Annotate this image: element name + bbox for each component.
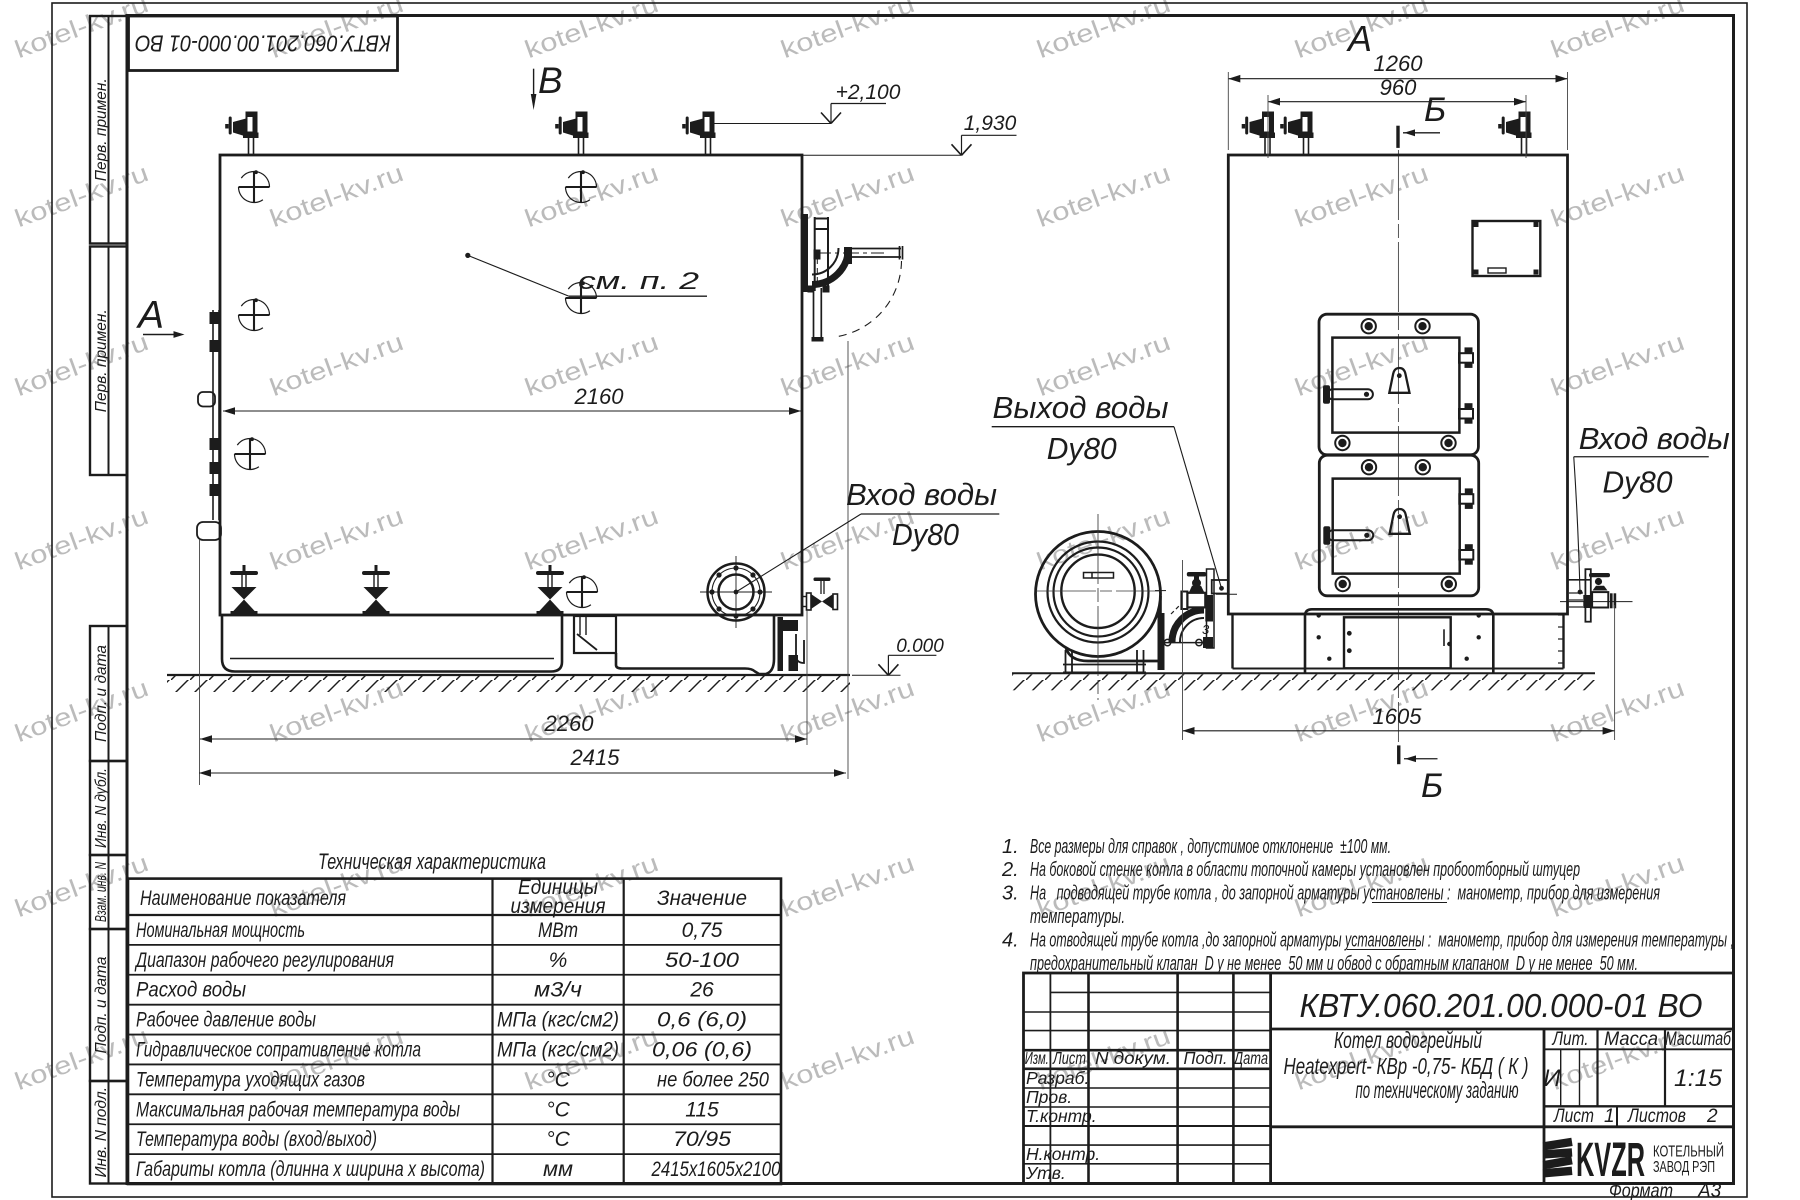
svg-text:КВТУ.060.201.00.000-01 ВО: КВТУ.060.201.00.000-01 ВО <box>1300 987 1703 1024</box>
svg-text:измерения: измерения <box>511 895 606 918</box>
svg-text:МПа (кгс/см2): МПа (кгс/см2) <box>497 1009 619 1032</box>
svg-text:1: 1 <box>1604 1106 1615 1127</box>
svg-text:°С: °С <box>546 1098 570 1121</box>
svg-text:На боковой стенке котла в обла: На боковой стенке котла в области топочн… <box>1030 859 1580 881</box>
svg-text:температуры.: температуры. <box>1030 906 1125 928</box>
svg-text:1260: 1260 <box>1374 51 1424 76</box>
svg-text:Перв. примен.: Перв. примен. <box>93 309 110 412</box>
svg-text:Техническая характеристика: Техническая характеристика <box>318 849 546 874</box>
svg-text:Формат: Формат <box>1609 1181 1673 1200</box>
svg-text:0,6 (6,0): 0,6 (6,0) <box>657 1009 747 1032</box>
svg-text:Листов: Листов <box>1626 1106 1686 1127</box>
svg-text:Габариты котла (длинна х ширин: Габариты котла (длинна х ширина х высота… <box>136 1158 485 1181</box>
svg-text:Расход воды: Расход воды <box>136 979 246 1002</box>
svg-text:Dy80: Dy80 <box>1603 465 1673 500</box>
svg-text:КОТЕЛЬНЫЙ: КОТЕЛЬНЫЙ <box>1653 1142 1724 1161</box>
svg-text:В: В <box>538 60 563 101</box>
svg-text:3: 3 <box>1202 622 1210 637</box>
svg-text:Подп. и дата: Подп. и дата <box>93 645 110 742</box>
svg-text:Б: Б <box>1421 767 1443 805</box>
svg-text:3.: 3. <box>1002 883 1019 905</box>
svg-text:ЗАВОД РЭП: ЗАВОД РЭП <box>1653 1159 1715 1176</box>
svg-text:Лит.: Лит. <box>1551 1029 1589 1050</box>
svg-text:26: 26 <box>689 979 714 1002</box>
svg-text:Наименование показателя: Наименование показателя <box>140 887 346 910</box>
svg-text:Вход воды: Вход воды <box>846 477 997 512</box>
svg-text:А: А <box>136 294 164 337</box>
svg-text:Инв. N подл.: Инв. N подл. <box>93 1087 110 1178</box>
svg-text:0.000: 0.000 <box>896 636 944 657</box>
svg-text:Т.контр.: Т.контр. <box>1026 1106 1097 1126</box>
svg-text:70/95: 70/95 <box>673 1128 731 1151</box>
svg-text:1:15: 1:15 <box>1674 1065 1723 1092</box>
svg-text:Гидравлическое сопративление к: Гидравлическое сопративление котла <box>136 1039 421 1062</box>
svg-text:см. п. 2: см. п. 2 <box>578 268 699 295</box>
svg-text:Номинальная мощность: Номинальная мощность <box>136 919 305 942</box>
svg-text:Дата: Дата <box>1233 1048 1269 1068</box>
svg-text:2415х1605х2100: 2415х1605х2100 <box>651 1158 781 1181</box>
svg-text:мм: мм <box>543 1158 573 1181</box>
svg-text:Котел водогрейный: Котел водогрейный <box>1334 1027 1482 1053</box>
svg-text:2415: 2415 <box>570 745 621 770</box>
svg-text:2160: 2160 <box>574 384 625 409</box>
svg-text:не более 250: не более 250 <box>657 1068 769 1091</box>
svg-text:На подводящей трубе котла ,: На подводящей трубе котла , до запорной … <box>1030 883 1660 905</box>
svg-text:Масштаб: Масштаб <box>1665 1029 1732 1050</box>
svg-text:Вход воды: Вход воды <box>1579 421 1730 456</box>
svg-text:1,930: 1,930 <box>964 112 1017 135</box>
svg-text:Dy80: Dy80 <box>1047 431 1117 466</box>
svg-text:Все размеры для справок , допу: Все размеры для справок , допустимое отк… <box>1030 836 1391 858</box>
svg-text:2: 2 <box>1706 1106 1718 1127</box>
svg-text:960: 960 <box>1380 75 1417 100</box>
svg-text:°С: °С <box>546 1068 570 1091</box>
svg-text:°С: °С <box>546 1128 570 1151</box>
svg-text:м3/ч: м3/ч <box>534 979 582 1002</box>
svg-text:Диапазон рабочего регулировани: Диапазон рабочего регулирования <box>134 949 394 972</box>
svg-text:115: 115 <box>685 1098 719 1121</box>
svg-text:Выход воды: Выход воды <box>993 390 1169 425</box>
svg-text:Dy80: Dy80 <box>892 517 959 552</box>
svg-text:Перв. примен.: Перв. примен. <box>93 78 110 181</box>
svg-text:Лист: Лист <box>1052 1048 1086 1068</box>
svg-text:+2,100: +2,100 <box>836 81 901 104</box>
svg-text:Рабочее давление воды: Рабочее давление воды <box>136 1009 316 1032</box>
svg-text:Значение: Значение <box>657 887 747 910</box>
svg-text:Максимальная рабочая температу: Максимальная рабочая температура воды <box>136 1098 460 1121</box>
svg-text:по техническому заданию: по техническому заданию <box>1356 1077 1519 1103</box>
svg-text:Изм.: Изм. <box>1025 1048 1049 1068</box>
svg-text:KVZR: KVZR <box>1576 1134 1645 1187</box>
svg-text:Пров.: Пров. <box>1026 1087 1072 1107</box>
svg-text:На отводящей трубе котла ,до з: На отводящей трубе котла ,до запорной ар… <box>1030 930 1734 952</box>
svg-text:Подп. и дата: Подп. и дата <box>93 956 110 1053</box>
svg-text:N докум.: N докум. <box>1095 1048 1171 1068</box>
svg-text:Лист: Лист <box>1552 1106 1594 1127</box>
svg-text:%: % <box>549 949 568 972</box>
svg-text:Инв. N дубл.: Инв. N дубл. <box>93 768 110 848</box>
svg-text:Масса: Масса <box>1604 1029 1658 1050</box>
svg-text:1.: 1. <box>1002 836 1019 858</box>
svg-text:2260: 2260 <box>544 711 595 736</box>
svg-text:МПа (кгс/см2): МПа (кгс/см2) <box>497 1039 619 1062</box>
svg-text:0,06 (0,6): 0,06 (0,6) <box>652 1039 752 1062</box>
svg-text:2.: 2. <box>1001 859 1019 881</box>
svg-text:КВТУ.060.201.00.000-01 ВО: КВТУ.060.201.00.000-01 ВО <box>135 31 391 57</box>
svg-text:50-100: 50-100 <box>665 949 739 972</box>
svg-text:Температура уходящих газов: Температура уходящих газов <box>136 1068 365 1091</box>
svg-text:Температура воды (вход/выход): Температура воды (вход/выход) <box>136 1128 377 1151</box>
svg-text:А: А <box>1346 18 1372 59</box>
svg-text:И: И <box>1543 1065 1561 1092</box>
svg-text:А3: А3 <box>1697 1181 1722 1200</box>
svg-text:Утв.: Утв. <box>1025 1163 1066 1183</box>
svg-text:Б: Б <box>1424 91 1446 129</box>
svg-text:Подп.: Подп. <box>1184 1048 1228 1068</box>
svg-text:0,75: 0,75 <box>682 919 723 942</box>
svg-text:Н.контр.: Н.контр. <box>1026 1144 1100 1164</box>
svg-text:Разраб.: Разраб. <box>1026 1068 1089 1088</box>
svg-text:Heatexpert- КВр -0,75- КБД ( К: Heatexpert- КВр -0,75- КБД ( К ) <box>1284 1053 1529 1079</box>
svg-text:1605: 1605 <box>1373 704 1423 729</box>
svg-text:МВт: МВт <box>538 919 578 942</box>
svg-text:Взам. инв. N: Взам. инв. N <box>93 861 110 922</box>
svg-text:4.: 4. <box>1002 930 1019 952</box>
